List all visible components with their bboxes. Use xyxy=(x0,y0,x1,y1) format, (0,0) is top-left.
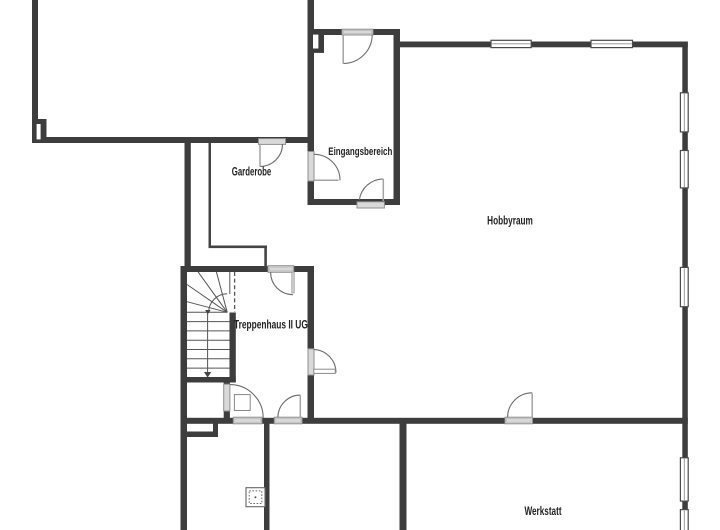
svg-text:Hobbyraum: Hobbyraum xyxy=(487,215,533,228)
svg-text:Werkstatt: Werkstatt xyxy=(524,506,562,519)
svg-text:Eingangsbereich: Eingangsbereich xyxy=(328,145,392,158)
svg-text:Garderobe: Garderobe xyxy=(232,166,272,179)
svg-text:Treppenhaus II UG: Treppenhaus II UG xyxy=(234,319,308,332)
